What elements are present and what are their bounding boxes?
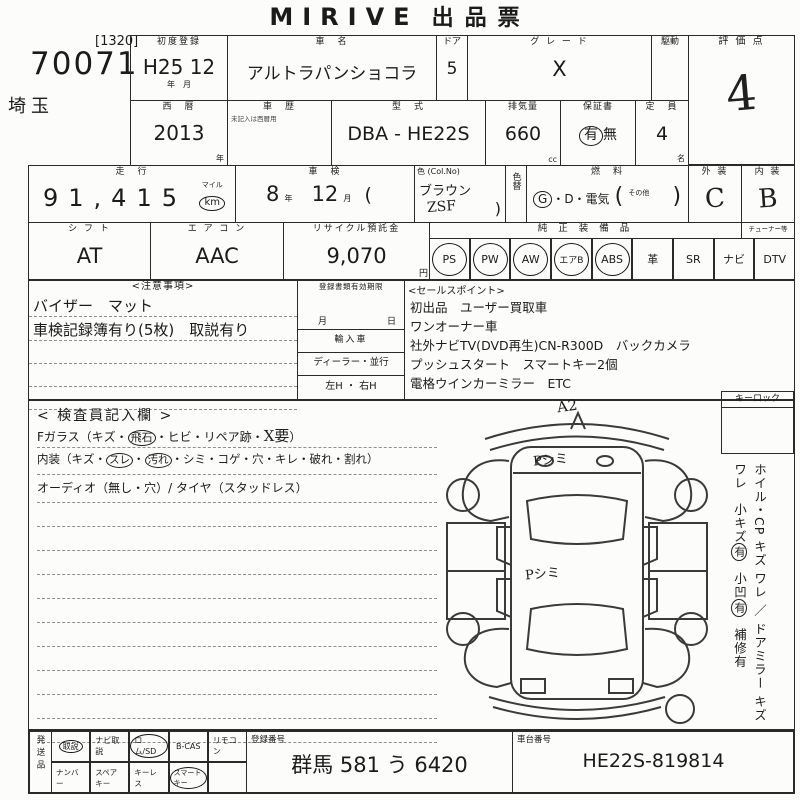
cell-recycle-deposit: リサイクル預託金 9,070 円 (283, 222, 430, 280)
color-paren-open: ( (364, 184, 371, 206)
inspector-line-interior: 内装（キズ・スレ・汚れ・シミ・コゲ・穴・キレ・破れ・割れ） (37, 448, 437, 475)
car-damage-diagram (433, 397, 721, 729)
sidebar-small-scratch-yes-circled: 有 (731, 543, 747, 561)
fuel-other-label: その他 (628, 189, 649, 197)
inspector-blank-line (37, 623, 437, 647)
color-paren-close: ) (495, 199, 501, 218)
equipment-row: PS PW AW エアB ABS 革 SR ナビ DTV (429, 238, 795, 280)
inspector-blank-line (37, 503, 437, 527)
ship-keyless: キーレス (130, 766, 167, 790)
fglass-x-required-handwritten: X要 (264, 427, 290, 445)
sidebar-small-dent: 小凹 (732, 572, 747, 599)
diagram-mark-p-stain-front: Pシミ (532, 448, 568, 470)
aircon-value: AAC (151, 244, 283, 268)
cell-model-code: 型 式 DBA - HE22S (331, 100, 486, 166)
doors-value: 5 (437, 59, 467, 79)
cell-shift: シ フ ト AT (28, 222, 151, 280)
inspector-line-fglass: Fガラス（キズ・飛石・ヒビ・リペア跡・X要） (37, 425, 437, 448)
cell-fuel: 燃 料 G・D・電気 ( その他 ) (526, 165, 689, 223)
ship-spare-key: スペアキー (91, 766, 128, 790)
cell-mileage: 走 行 91,415 マイル km (28, 165, 236, 223)
fuel-gasoline-circled: G (533, 191, 552, 208)
equipment-navi: ナビ (717, 243, 752, 276)
cell-warranty: 保証書 有無 (560, 100, 636, 166)
mileage-label: 走 行 (29, 166, 235, 178)
docs-dealer-cell: ディーラー・並行 (297, 352, 405, 376)
shaken-month-unit: 月 (343, 194, 351, 203)
chassis-number-value: HE22S-819814 (513, 750, 794, 772)
equipment-tuner-header: チューナー等 (741, 222, 795, 239)
drivetrain-label: 駆動 (652, 36, 688, 48)
inspector-blank-line (37, 647, 437, 671)
equipment-header: 純 正 装 備 品 (429, 222, 742, 239)
equipment-cell-pw: PW (470, 238, 511, 280)
interior-text: ・シミ・コゲ・穴・キレ・破れ・割れ） (172, 452, 379, 466)
cell-interior-grade: 内 装 B (741, 165, 795, 223)
car-name-value: アルトラパンショコラ (228, 59, 436, 84)
prefecture: 埼玉 (8, 92, 54, 118)
capacity-label: 定 員 (636, 101, 688, 113)
shaken-label: 車 検 (236, 166, 414, 178)
mileage-unit: マイル km (199, 180, 225, 211)
cell-aircon: エ ア コ ン AAC (150, 222, 284, 280)
first-registration-label: 初度登録 (131, 36, 227, 48)
fglass-stone-chip-circled: 飛石 (128, 430, 156, 446)
equipment-cell-airbag: エアB (551, 238, 592, 280)
mileage-unit-km-circled: km (199, 196, 225, 211)
lot-number: 70071 (30, 46, 139, 82)
displacement-value: 660 (486, 123, 560, 145)
ship-cell-rom-sd: ロム/SD (129, 730, 168, 762)
equipment-dtv: DTV (757, 243, 792, 276)
shipping-grid: 取説 ナビ取説 ロム/SD B-CAS リモコン ナンバー スペアキー キーレス… (51, 730, 247, 794)
interior-text: 内装（キズ・ (37, 452, 106, 466)
equipment-cell-dtv: DTV (754, 238, 795, 280)
inspector-blank-line (37, 695, 437, 719)
equipment-ps: PS (432, 243, 467, 276)
title-jp: 出品票 (432, 6, 531, 31)
exterior-value: C (688, 182, 742, 216)
docs-handle-label: 左H ・ 右H (298, 376, 404, 397)
notes-blank-line (29, 364, 297, 387)
equipment-leather: 革 (635, 243, 670, 276)
title-latin: MIRIVE (269, 3, 418, 31)
sales-point-line: プッシュスタート スマートキー2個 (405, 355, 794, 374)
ship-cell-bcas: B-CAS (169, 730, 208, 762)
fuel-paren-open: ( (615, 184, 624, 209)
shaken-year: 8 (266, 182, 279, 206)
interior-dirt-circled: 汚れ (145, 453, 172, 468)
cell-color: 色 (Col.No) ブラウン ZSF ) (414, 165, 506, 223)
interior-text: ・ (133, 452, 145, 466)
notes-label: <注意事項> (29, 281, 297, 293)
first-registration-value: H25 12 (131, 55, 227, 79)
ship-bcas: B-CAS (172, 741, 205, 752)
ship-cell-spare-key: スペアキー (90, 762, 129, 794)
cell-score: 評 価 点 4 (688, 35, 795, 165)
registration-number-label: 登録番号 (247, 731, 512, 745)
inspector-label: < 検査員記入欄 > (37, 405, 437, 425)
chassis-number-label: 車台番号 (513, 731, 794, 745)
sidebar-small-scratch: 小キズ (732, 503, 747, 544)
equipment-cell-sr: SR (673, 238, 714, 280)
sidebar-small-dent-yes-circled: 有 (731, 599, 747, 617)
inspector-blank-line (37, 575, 437, 599)
sales-points-box: <セールスポイント> 初出品 ユーザー買取車 ワンオーナー車 社外ナビTV(DV… (404, 280, 795, 400)
equipment-sunroof: SR (676, 243, 711, 276)
ship-cell-keyless: キーレス (129, 762, 168, 794)
shaken-month: 12 (312, 182, 339, 206)
recycle-unit: 円 (419, 266, 428, 279)
capacity-value: 4 (636, 123, 688, 145)
ship-smart-key: スマートキー (170, 767, 207, 789)
notes-line-1: バイザー マット (29, 293, 297, 317)
shaken-year-unit: 年 (284, 194, 292, 203)
docs-dealer-label: ディーラー・並行 (298, 353, 404, 373)
docs-import-label: 輸入車 (298, 330, 404, 350)
sidebar-remarks: ホイル・CP キズ ワレ ／ ドアミラー キズ ワレ 小キズ有 小凹有 補修有 (729, 463, 769, 725)
notes-box: <注意事項> バイザー マット 車検記録簿有り(5枚) 取説有り (28, 280, 298, 400)
sheet-title: MIRIVE 出品票 (0, 0, 800, 32)
ship-remote: リモコン (209, 734, 246, 758)
shift-label: シ フ ト (29, 223, 150, 235)
capacity-unit: 名 (677, 153, 685, 164)
year-label: 西 暦 (131, 101, 227, 113)
sidebar-repair-text: 補修有 (732, 628, 747, 669)
docs-handle-cell: 左H ・ 右H (297, 375, 405, 400)
equipment-abs: ABS (595, 243, 630, 276)
grade-label: グ レ ー ド (468, 36, 651, 48)
model-value: DBA - HE22S (332, 123, 485, 145)
mileage-value: 91,415 (43, 184, 187, 212)
inspector-blank-line (37, 599, 437, 623)
sales-points-label: <セールスポイント> (405, 281, 794, 297)
registration-number-cell: 登録番号 群馬 581 う 6420 (246, 730, 513, 794)
cell-grade: グ レ ー ド X (467, 35, 652, 101)
mileage-unit-mile: マイル (199, 180, 225, 190)
exterior-label: 外 装 (689, 166, 741, 178)
fglass-text: ・ヒビ・リペア跡・ (156, 430, 264, 444)
first-registration-unit: 年 月 (131, 79, 227, 90)
inspector-blank-line (37, 551, 437, 575)
equipment-aw: AW (513, 243, 548, 276)
model-label: 型 式 (332, 101, 485, 113)
notes-blank-line (29, 341, 297, 364)
year-unit: 年 (216, 153, 224, 164)
ship-cell-smart-key: スマートキー (169, 762, 208, 794)
fuel-others: ・D・電気 (552, 192, 609, 206)
diagram-mark-a2: A2 (556, 396, 579, 417)
interior-value: B (741, 182, 795, 216)
sales-point-line: 社外ナビTV(DVD再生)CN-R300D バックカメラ (405, 336, 794, 355)
keylock-label: キーロック (722, 392, 793, 408)
cell-displacement: 排気量 660 cc (485, 100, 561, 166)
score-label: 評 価 点 (689, 36, 794, 48)
cell-drivetrain: 駆動 (651, 35, 689, 101)
recolor-label: 色替 (510, 172, 523, 216)
cell-recolor: 色替 (505, 165, 527, 223)
history-note: 未記入は西暦用 (228, 113, 331, 123)
registration-number-value: 群馬 581 う 6420 (247, 749, 512, 779)
interior-label: 内 装 (742, 166, 794, 178)
inspector-line-audio-tire: オーディオ（無し・穴）/ タイヤ（スタッドレス） (37, 475, 437, 503)
color-code-value: ZSF (426, 198, 456, 216)
equipment-cell-abs: ABS (592, 238, 633, 280)
grade-value: X (468, 57, 651, 81)
equipment-cell-aw: AW (510, 238, 551, 280)
shipping-items-cell: 発送品 (28, 730, 52, 794)
ship-number-plate: ナンバー (52, 766, 89, 790)
ship-cell-empty (208, 762, 247, 794)
cell-exterior-grade: 外 装 C (688, 165, 742, 223)
equipment-label: 純 正 装 備 品 (430, 223, 741, 235)
warranty-no: 無 (603, 127, 617, 143)
docs-month-label: 月 (318, 314, 327, 327)
displacement-unit: cc (548, 155, 557, 164)
fglass-text: ） (289, 430, 301, 444)
cell-first-registration: 初度登録 H25 12 年 月 (130, 35, 228, 101)
keylock-box: キーロック (721, 391, 794, 454)
displacement-label: 排気量 (486, 101, 560, 113)
inspector-area: < 検査員記入欄 > Fガラス（キズ・飛石・ヒビ・リペア跡・X要） 内装（キズ・… (28, 400, 795, 730)
cell-shaken: 車 検 8 年 12 月 ( (235, 165, 415, 223)
chassis-number-cell: 車台番号 HE22S-819814 (512, 730, 795, 794)
equipment-cell-leather: 革 (632, 238, 673, 280)
inspector-blank-line (37, 671, 437, 695)
auction-sheet: MIRIVE 出品票 [1320] 70071 埼玉 初度登録 H25 12 年… (0, 0, 800, 800)
cell-car-name: 車 名 アルトラパンショコラ (227, 35, 437, 101)
inspector-blank-line (37, 527, 437, 551)
docs-day-label: 日 (387, 314, 396, 327)
cell-year: 西 暦 2013 年 (130, 100, 228, 166)
docs-validity-label: 登録書類有効期限 (298, 281, 404, 292)
ship-cell-navi-manual: ナビ取説 (90, 730, 129, 762)
warranty-label: 保証書 (561, 101, 635, 113)
docs-import-cell: 輸入車 (297, 329, 405, 353)
docs-validity-cell: 登録書類有効期限 月 日 (297, 280, 405, 330)
color-value: ブラウン (419, 180, 471, 199)
diagram-mark-p-stain-mid: Pシミ (524, 562, 560, 584)
aircon-label: エ ア コ ン (151, 223, 283, 235)
notes-line-2: 車検記録簿有り(5枚) 取説有り (29, 317, 297, 341)
equipment-cell-navi: ナビ (714, 238, 755, 280)
cell-capacity: 定 員 4 名 (635, 100, 689, 166)
ship-navi-manual: ナビ取説 (91, 734, 128, 758)
recycle-label: リサイクル預託金 (284, 223, 429, 235)
warranty-yes-circled: 有 (579, 126, 603, 146)
fuel-label: 燃 料 (527, 166, 688, 178)
score-value: 4 (687, 62, 796, 127)
history-label: 車 歴 (228, 101, 331, 113)
shift-value: AT (29, 244, 150, 268)
tuner-label: チューナー等 (742, 223, 794, 236)
equipment-pw: PW (473, 243, 508, 276)
ship-manual: 取説 (59, 740, 83, 753)
doors-label: ドア (437, 36, 467, 48)
sales-point-line: ワンオーナー車 (405, 317, 794, 336)
fglass-text: Fガラス（キズ・ (37, 430, 128, 444)
ship-cell-remote: リモコン (208, 730, 247, 762)
color-label: 色 (Col.No) (415, 166, 505, 178)
shipping-items-label: 発送品 (34, 735, 46, 789)
ship-rom-sd: ロム/SD (130, 734, 167, 758)
ship-cell-manual: 取説 (51, 730, 90, 762)
year-value: 2013 (131, 121, 227, 145)
fuel-paren-close: ) (672, 184, 681, 209)
cell-history: 車 歴 未記入は西暦用 (227, 100, 332, 166)
sales-point-line: 初出品 ユーザー買取車 (405, 297, 794, 317)
equipment-airbag: エアB (554, 243, 589, 276)
recycle-value: 9,070 (284, 244, 429, 268)
interior-scuff-circled: スレ (106, 453, 133, 468)
cell-doors: ドア 5 (436, 35, 468, 101)
car-name-label: 車 名 (228, 36, 436, 48)
ship-cell-number-plate: ナンバー (51, 762, 90, 794)
equipment-cell-ps: PS (429, 238, 470, 280)
